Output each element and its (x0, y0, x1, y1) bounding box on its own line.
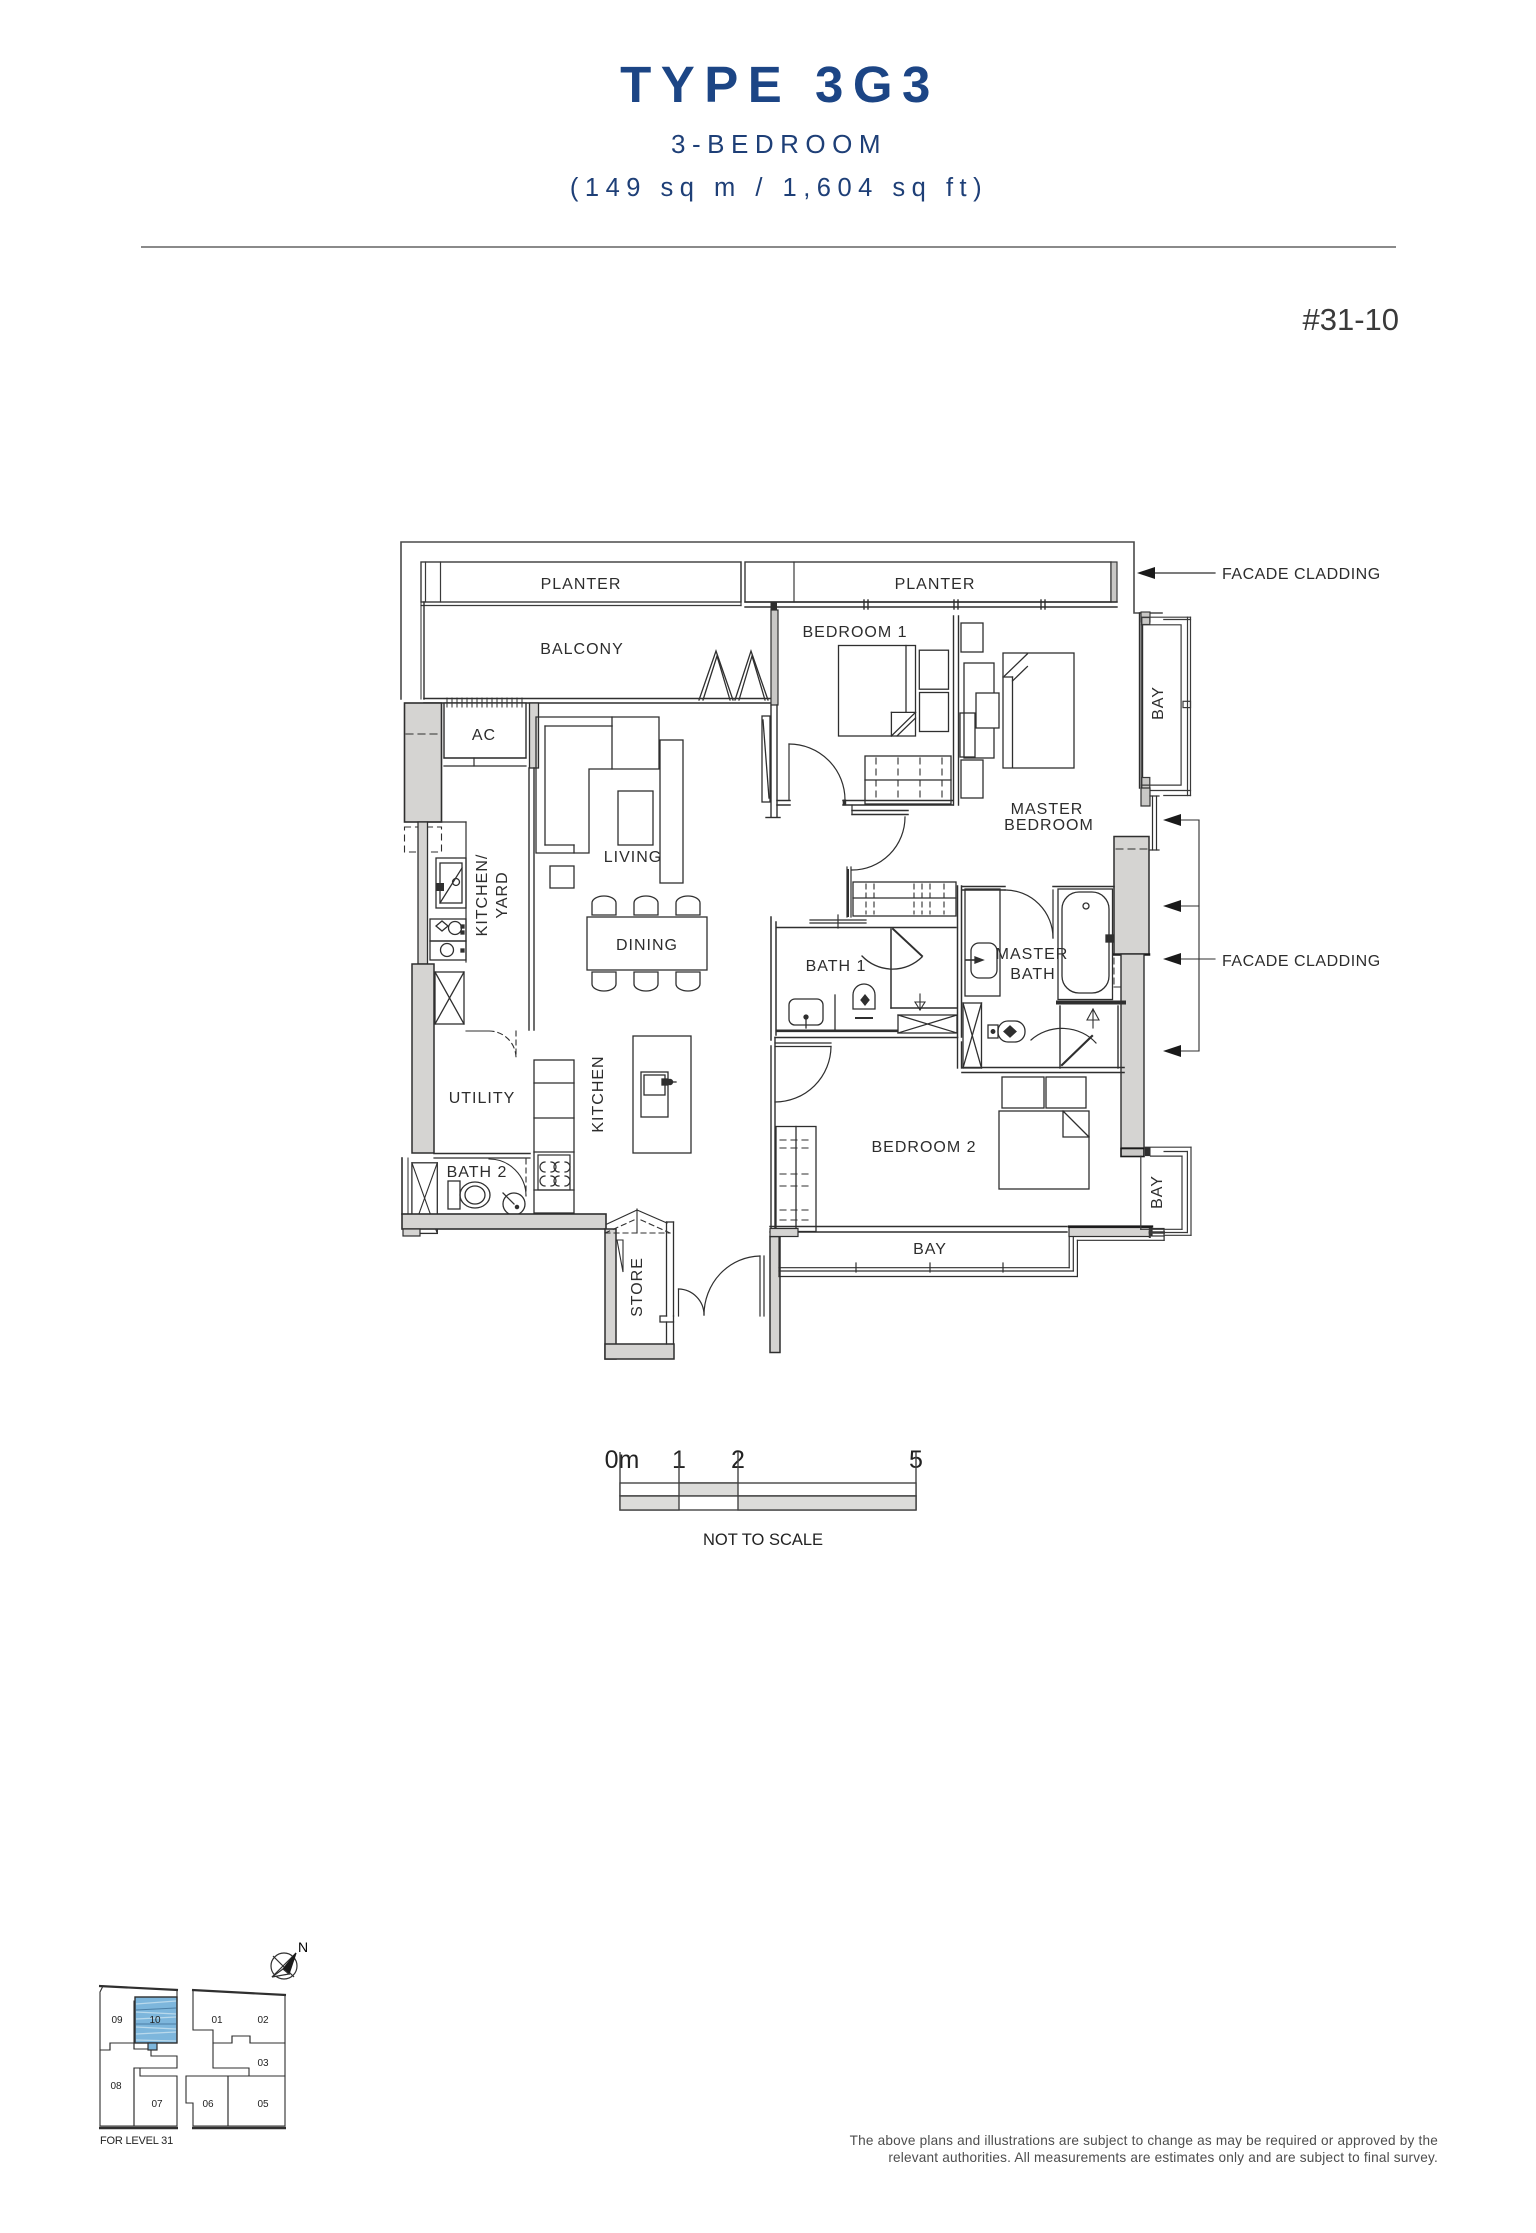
svg-text:08: 08 (110, 2081, 122, 2092)
svg-text:BEDROOM 1: BEDROOM 1 (802, 624, 907, 641)
svg-text:BALCONY: BALCONY (540, 641, 623, 658)
svg-text:BAY: BAY (913, 1241, 947, 1258)
svg-text:LIVING: LIVING (604, 849, 662, 866)
svg-text:10: 10 (149, 2015, 161, 2026)
svg-text:BEDROOM: BEDROOM (1004, 817, 1094, 834)
svg-text:01: 01 (211, 2015, 223, 2026)
svg-text:TYPE 3G3: TYPE 3G3 (620, 56, 940, 113)
svg-text:PLANTER: PLANTER (895, 576, 976, 593)
svg-text:BEDROOM 2: BEDROOM 2 (871, 1139, 976, 1156)
svg-text:FACADE CLADDING: FACADE CLADDING (1222, 953, 1381, 970)
svg-text:KITCHEN/: KITCHEN/ (474, 854, 491, 937)
svg-text:NOT TO SCALE: NOT TO SCALE (703, 1531, 823, 1549)
svg-text:BAY: BAY (1150, 686, 1167, 720)
svg-text:(149 sq m / 1,604 sq ft): (149 sq m / 1,604 sq ft) (570, 174, 988, 202)
svg-text:YARD: YARD (494, 871, 511, 918)
svg-text:DINING: DINING (616, 937, 678, 954)
svg-text:STORE: STORE (629, 1257, 646, 1317)
svg-text:0m: 0m (605, 1446, 640, 1474)
svg-text:BATH: BATH (1010, 966, 1055, 983)
svg-text:BAY: BAY (1149, 1175, 1166, 1209)
svg-text:09: 09 (111, 2015, 123, 2026)
svg-text:UTILITY: UTILITY (449, 1090, 516, 1107)
svg-text:BATH 2: BATH 2 (447, 1164, 508, 1181)
svg-text:3-BEDROOM: 3-BEDROOM (671, 129, 887, 159)
svg-text:05: 05 (257, 2099, 269, 2110)
svg-text:KITCHEN: KITCHEN (590, 1055, 607, 1132)
svg-text:BATH 1: BATH 1 (806, 958, 867, 975)
svg-text:#31-10: #31-10 (1302, 302, 1399, 337)
svg-text:07: 07 (151, 2099, 163, 2110)
svg-text:02: 02 (257, 2015, 269, 2026)
svg-text:FACADE CLADDING: FACADE CLADDING (1222, 566, 1381, 583)
svg-text:relevant authorities. All meas: relevant authorities. All measurements a… (888, 2150, 1438, 2165)
svg-text:FOR LEVEL 31: FOR LEVEL 31 (100, 2135, 173, 2147)
svg-text:03: 03 (257, 2058, 269, 2069)
svg-text:MASTER: MASTER (1011, 801, 1084, 818)
svg-text:The above plans and illustrati: The above plans and illustrations are su… (850, 2133, 1438, 2148)
svg-text:AC: AC (472, 727, 496, 744)
svg-text:PLANTER: PLANTER (541, 576, 622, 593)
svg-text:06: 06 (202, 2099, 214, 2110)
svg-text:N: N (298, 1939, 308, 1955)
